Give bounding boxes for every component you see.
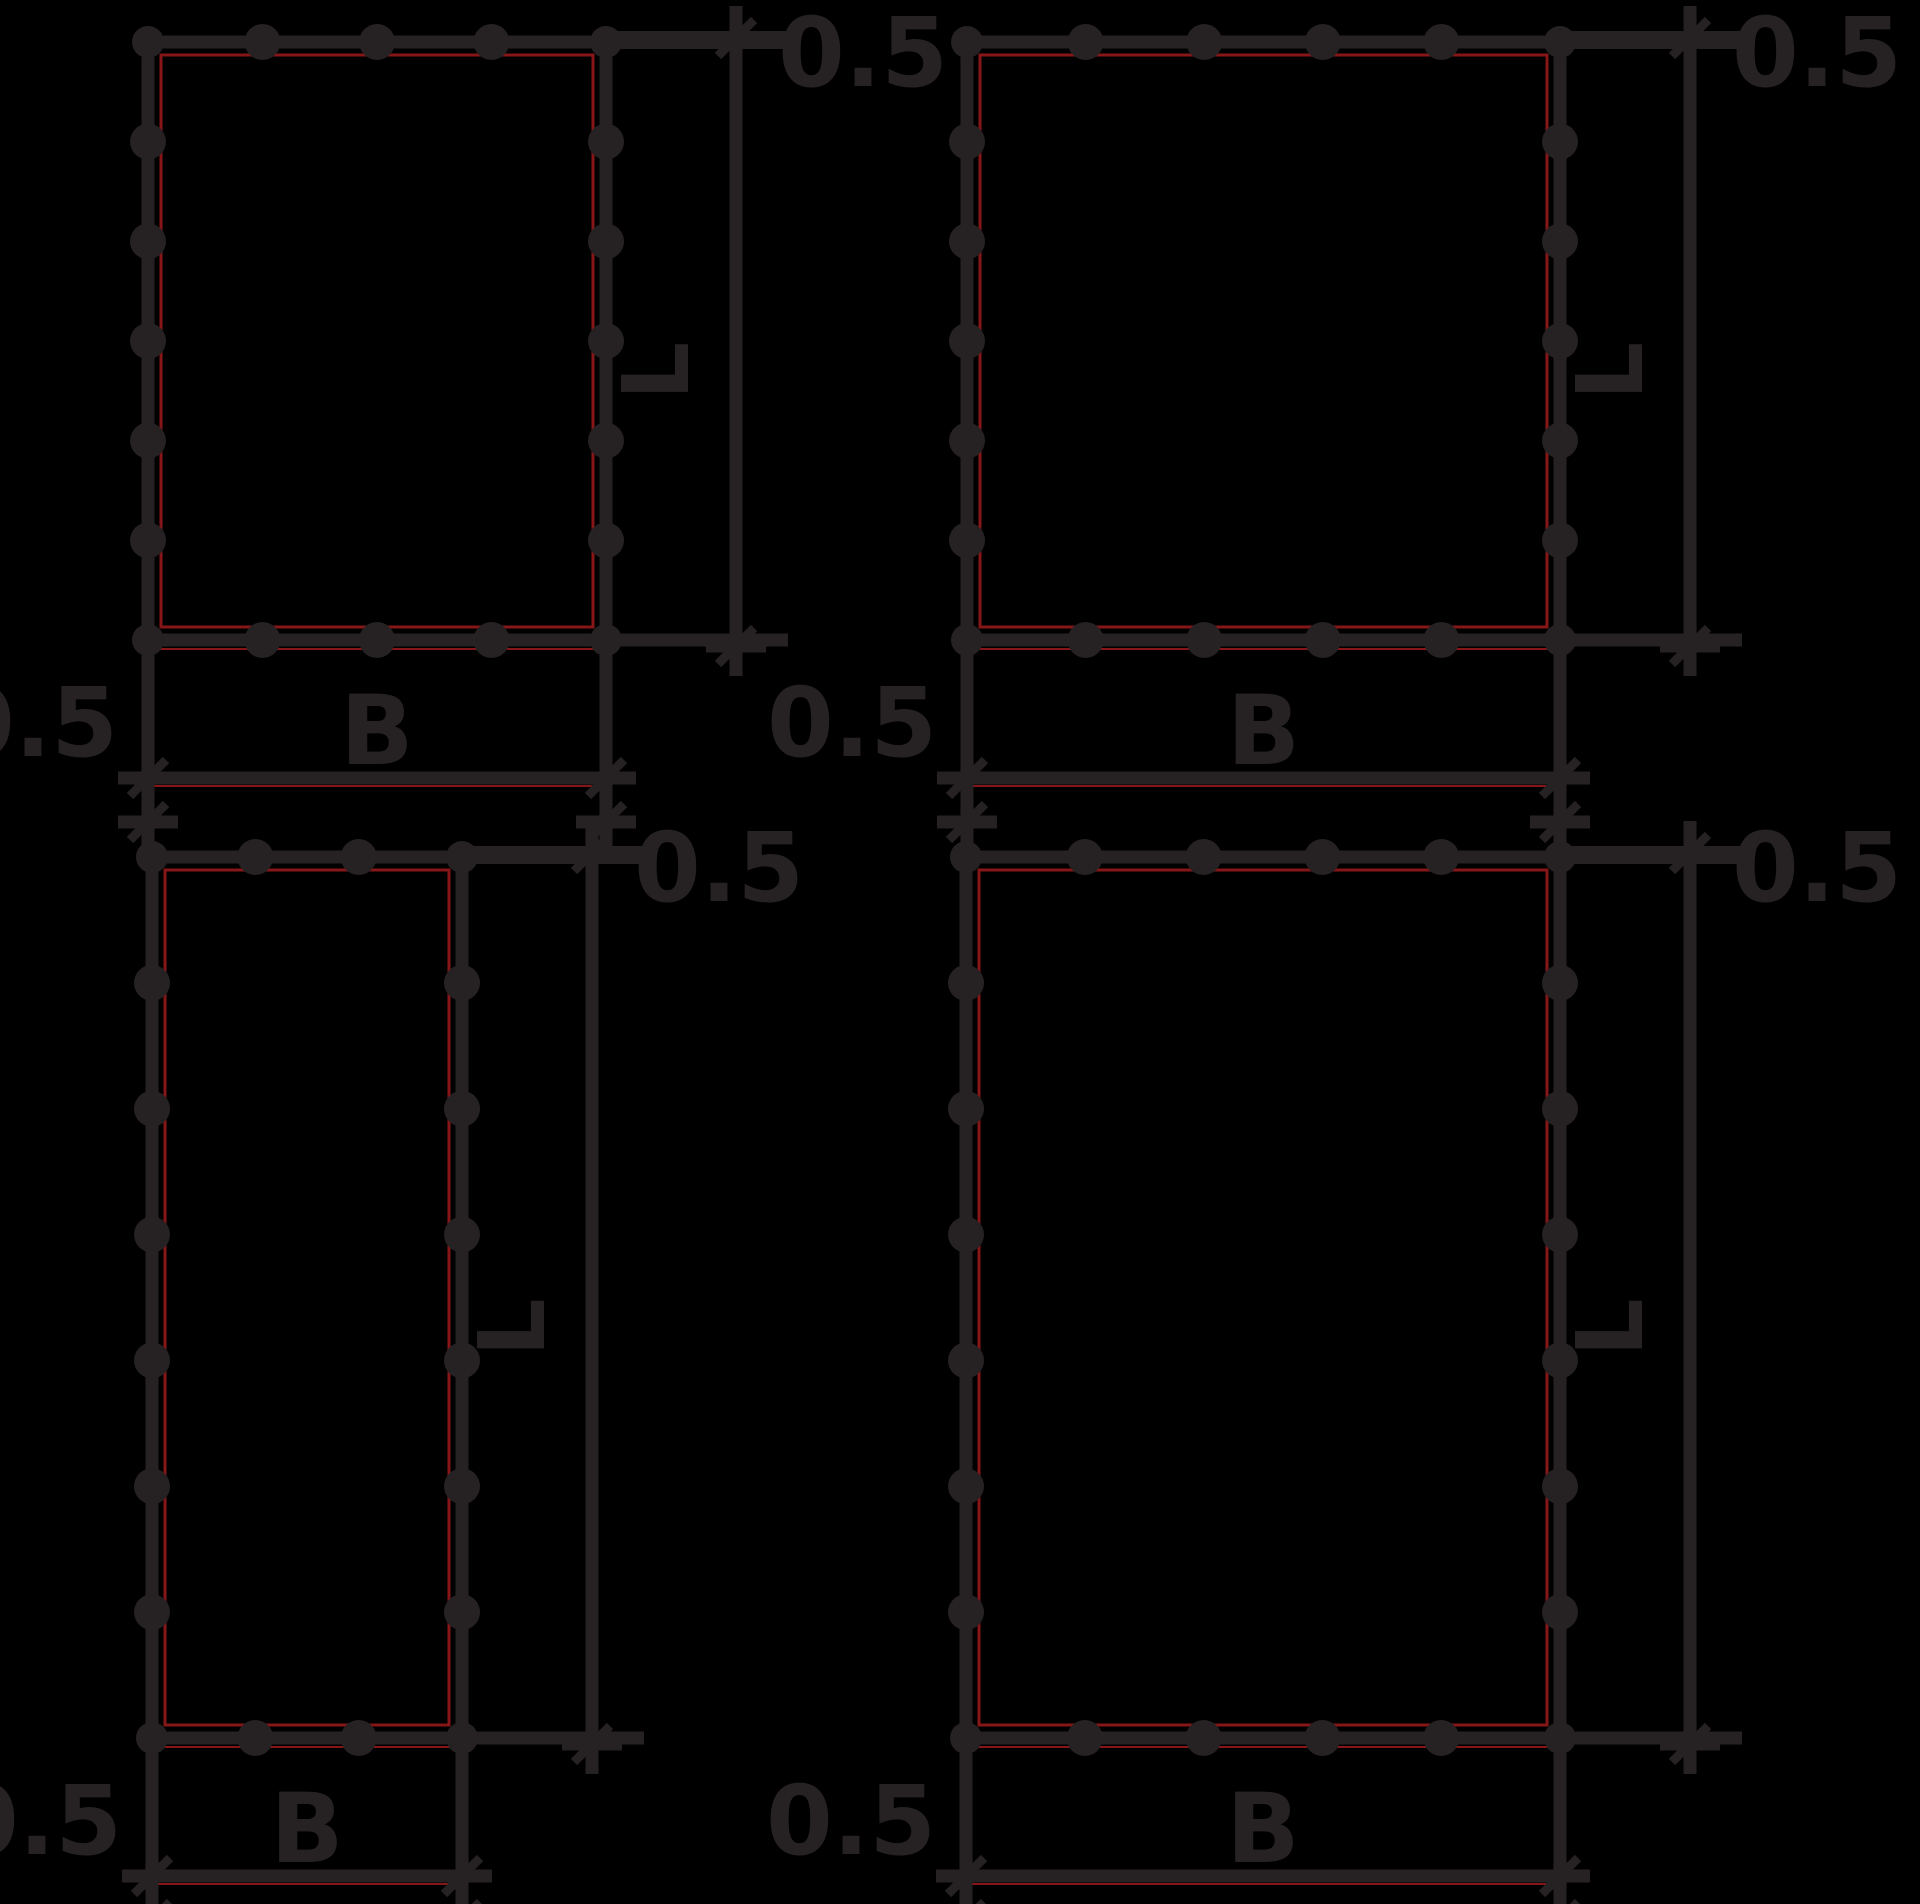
- width-label-top-left: B: [340, 675, 413, 787]
- diagram-canvas: L0.5B0.5L0.5B0.5L0.5B0.5L0.5B0.5: [0, 0, 1920, 1904]
- length-label-top-left: L: [603, 342, 710, 401]
- length-label-bottom-left: L: [459, 1298, 566, 1357]
- length-label-top-right: L: [1557, 342, 1664, 401]
- offset-top-label-bottom-left: 0.5: [634, 812, 804, 924]
- offset-bottom-label-bottom-right: 0.5: [766, 1765, 936, 1877]
- panel-diagram: L0.5B0.5L0.5B0.5L0.5B0.5L0.5B0.5: [0, 0, 1920, 1904]
- width-label-bottom-right: B: [1226, 1773, 1299, 1885]
- offset-top-label-bottom-right: 0.5: [1732, 812, 1902, 924]
- offset-top-label-top-right: 0.5: [1732, 0, 1902, 109]
- offset-top-label-top-left: 0.5: [778, 0, 948, 109]
- width-label-top-right: B: [1227, 675, 1300, 787]
- length-label-bottom-right: L: [1557, 1298, 1664, 1357]
- offset-bottom-label-top-left: 0.5: [0, 667, 118, 779]
- width-label-bottom-left: B: [270, 1773, 343, 1885]
- offset-bottom-label-top-right: 0.5: [767, 667, 937, 779]
- offset-bottom-label-bottom-left: 0.5: [0, 1765, 122, 1877]
